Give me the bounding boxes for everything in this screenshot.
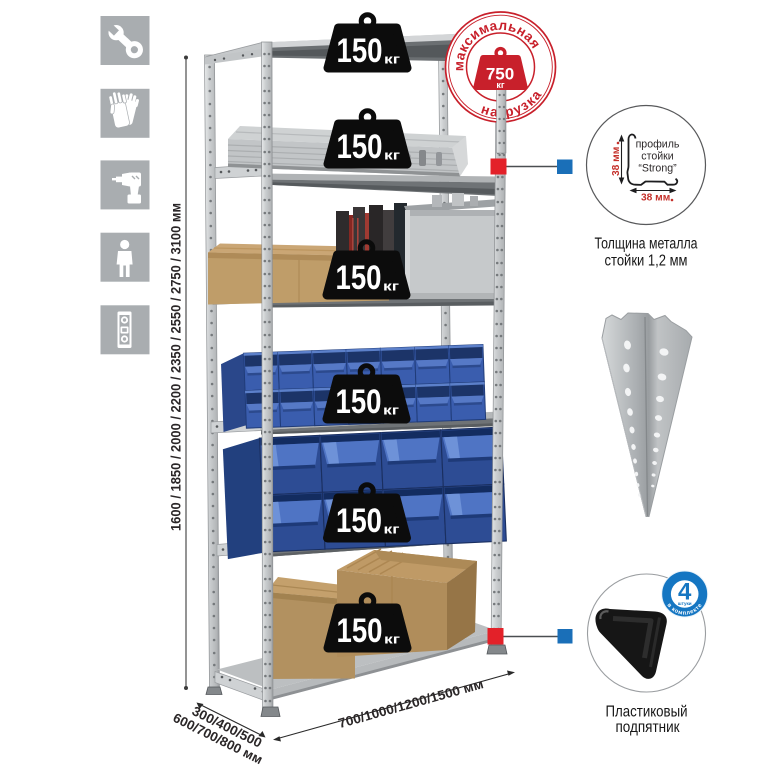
- svg-text:38 мм: 38 мм: [641, 193, 670, 204]
- svg-text:кг: кг: [384, 148, 401, 163]
- svg-text:150: 150: [336, 502, 382, 540]
- svg-text:кг: кг: [383, 279, 400, 294]
- svg-text:стойки: стойки: [641, 151, 673, 163]
- svg-text:стойки 1,2 мм: стойки 1,2 мм: [605, 253, 688, 270]
- svg-text:150: 150: [337, 128, 383, 166]
- svg-text:38 мм: 38 мм: [611, 147, 622, 176]
- svg-text:кг: кг: [384, 522, 401, 537]
- svg-text:150: 150: [337, 32, 383, 70]
- svg-text:профиль: профиль: [636, 139, 680, 151]
- svg-text:150: 150: [336, 383, 382, 421]
- svg-text:150: 150: [336, 259, 382, 297]
- svg-text:150: 150: [337, 612, 383, 650]
- svg-text:кг: кг: [384, 52, 401, 67]
- svg-text:штуки: штуки: [678, 601, 692, 606]
- svg-text:кг: кг: [384, 632, 401, 647]
- svg-text:Пластиковый: Пластиковый: [606, 704, 688, 721]
- svg-text:“Strong”: “Strong”: [638, 163, 677, 175]
- svg-text:подпятник: подпятник: [616, 719, 681, 736]
- svg-text:кг: кг: [496, 80, 505, 90]
- svg-text:1600 / 1850 / 2000 / 2200 / 23: 1600 / 1850 / 2000 / 2200 / 2350 / 2550 …: [169, 203, 185, 531]
- svg-text:Толщина металла: Толщина металла: [595, 236, 698, 253]
- svg-text:кг: кг: [383, 403, 400, 418]
